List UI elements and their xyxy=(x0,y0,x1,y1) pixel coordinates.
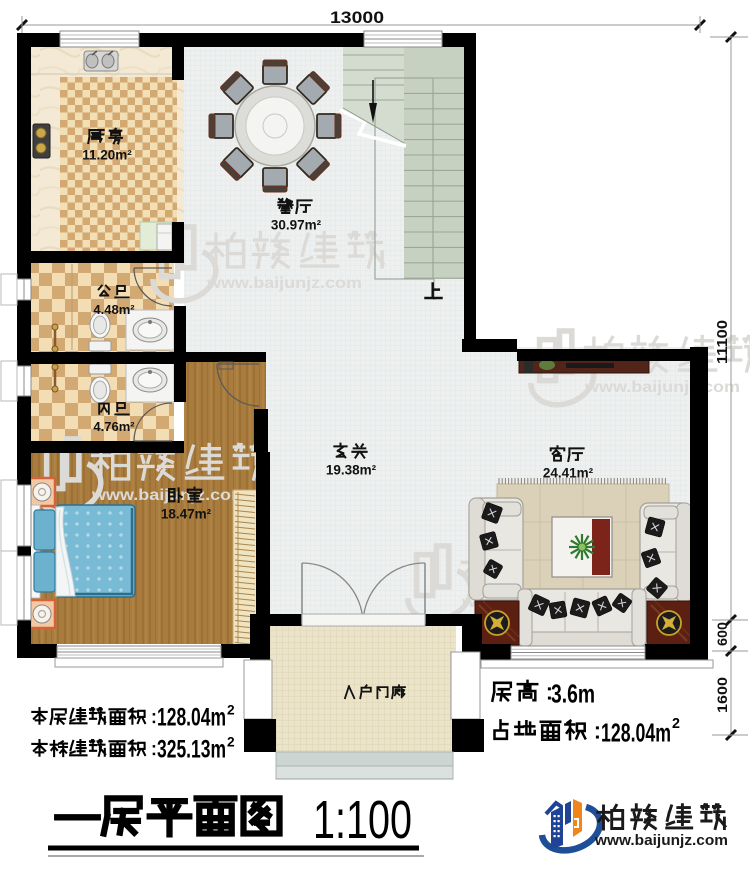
svg-text:18.47m²: 18.47m² xyxy=(161,507,212,522)
svg-text:2: 2 xyxy=(227,735,235,750)
svg-text:325.13m: 325.13m xyxy=(157,735,226,763)
svg-text:24.41m²: 24.41m² xyxy=(543,466,594,481)
svg-text:2: 2 xyxy=(227,703,235,718)
svg-text:www.baijunjz.com: www.baijunjz.com xyxy=(584,379,740,396)
svg-text:128.04m: 128.04m xyxy=(601,717,671,747)
svg-text:19.38m²: 19.38m² xyxy=(326,463,377,478)
svg-text:2: 2 xyxy=(672,716,680,732)
svg-text:1:100: 1:100 xyxy=(313,790,412,850)
svg-text:128.04m: 128.04m xyxy=(157,703,226,731)
svg-text:4.76m²: 4.76m² xyxy=(93,419,135,434)
svg-text:www.baijunjz.com: www.baijunjz.com xyxy=(594,832,728,849)
svg-text:www.baijunjz.com: www.baijunjz.com xyxy=(206,275,362,292)
svg-text:11.20m²: 11.20m² xyxy=(82,148,132,163)
svg-text:11100: 11100 xyxy=(714,320,731,364)
svg-text:13000: 13000 xyxy=(330,8,384,27)
svg-text:30.97m²: 30.97m² xyxy=(271,218,322,233)
svg-text:1600: 1600 xyxy=(714,677,730,713)
svg-text:3.6m: 3.6m xyxy=(551,678,595,708)
svg-text:4.48m²: 4.48m² xyxy=(93,302,135,317)
svg-text:600: 600 xyxy=(714,622,730,646)
